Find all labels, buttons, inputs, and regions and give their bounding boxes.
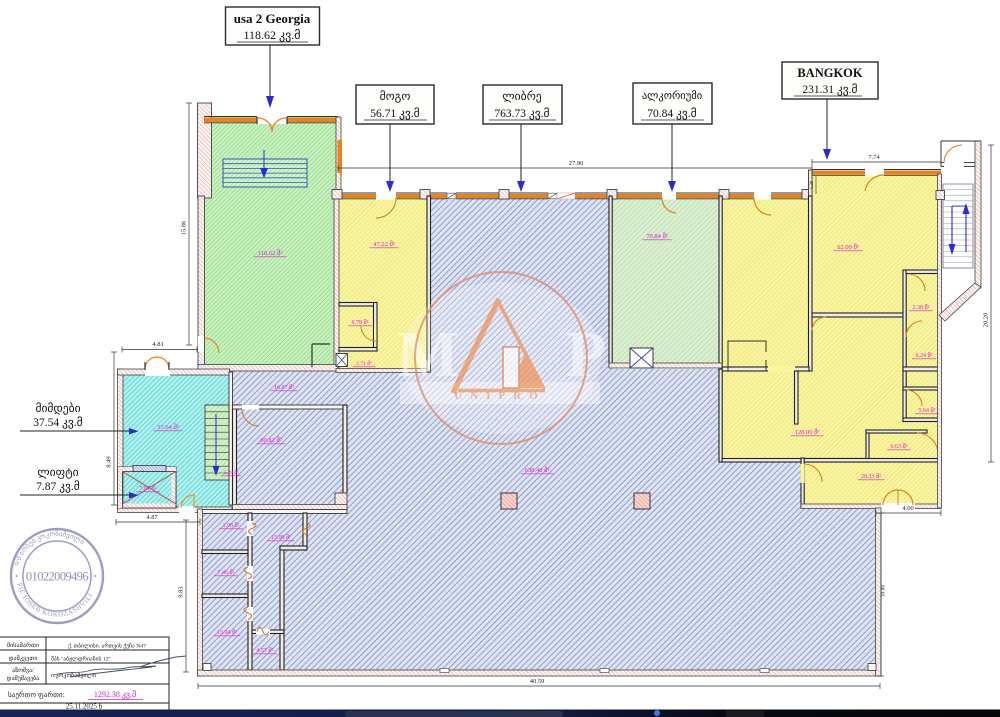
svg-text:6.63 მ²: 6.63 მ² <box>891 442 908 450</box>
svg-text:638.48 მ²: 638.48 მ² <box>525 466 550 474</box>
svg-text:15.00 მ²: 15.00 მ² <box>271 533 291 541</box>
svg-text:40.59: 40.59 <box>530 678 545 685</box>
svg-text:25.11.2025 წ: 25.11.2025 წ <box>66 703 103 711</box>
svg-text:•: • <box>94 572 97 581</box>
svg-text:47.22 მ²: 47.22 მ² <box>373 240 395 248</box>
svg-text:ქ. თბილისი, ართვის ქუჩა N47: ქ. თბილისი, ართვის ქუჩა N47 <box>68 642 146 650</box>
svg-text:118.62 მ²: 118.62 მ² <box>258 249 283 257</box>
svg-text:118.62 კვ.მ: 118.62 კვ.მ <box>243 28 300 42</box>
svg-text:16.87 მ²: 16.87 მ² <box>274 383 294 391</box>
svg-text:8.49: 8.49 <box>106 456 113 467</box>
svg-text:2.38 მ²: 2.38 მ² <box>913 303 930 311</box>
svg-text:20.20: 20.20 <box>983 313 990 328</box>
svg-text:7.46 მ²: 7.46 მ² <box>218 568 235 576</box>
svg-text:01022009496: 01022009496 <box>26 570 89 584</box>
svg-text:BANGKOK: BANGKOK <box>797 66 863 80</box>
svg-text:7.74: 7.74 <box>868 154 880 161</box>
svg-text:დამკვეთი: დამკვეთი <box>8 654 37 662</box>
svg-text:13.04 მ²: 13.04 მ² <box>217 628 237 636</box>
svg-text:37.64 მ²: 37.64 მ² <box>157 423 179 431</box>
svg-text:მიმდები: მიმდები <box>35 401 80 415</box>
svg-text:6.24 მ²: 6.24 მ² <box>916 351 933 359</box>
svg-text:M: M <box>397 318 459 391</box>
svg-text:70.84 კვ.მ: 70.84 კვ.მ <box>647 106 696 120</box>
svg-text:4.81: 4.81 <box>152 341 163 348</box>
svg-text:7.87 მ²: 7.87 მ² <box>140 484 157 492</box>
svg-text:231.31 კვ.მ: 231.31 კვ.მ <box>802 82 857 96</box>
svg-text:UNIPRO: UNIPRO <box>454 390 545 402</box>
svg-text:5.28 მ²: 5.28 მ² <box>224 469 239 476</box>
svg-text:მისამართი: მისამართი <box>7 641 39 649</box>
svg-text:5.64 მ²: 5.64 მ² <box>919 406 936 414</box>
svg-text:საერთო ფართი:: საერთო ფართი: <box>8 691 65 699</box>
svg-text:128.00 მ²: 128.00 მ² <box>795 428 820 436</box>
svg-text:2.71 მ²: 2.71 მ² <box>356 359 372 367</box>
svg-text:•: • <box>15 572 18 581</box>
svg-text:3.98 მ²: 3.98 მ² <box>223 521 240 529</box>
svg-text:56.71 კვ.მ: 56.71 კვ.მ <box>370 106 419 120</box>
svg-text:15.86: 15.86 <box>181 220 188 235</box>
svg-text:62.09 მ²: 62.09 მ² <box>837 243 859 251</box>
svg-text:20.33 მ²: 20.33 მ² <box>861 472 881 480</box>
svg-text:შპს "აბჟლდრიანის 12": შპს "აბჟლდრიანის 12" <box>51 655 111 663</box>
svg-text:დამუშავება: დამუშავება <box>7 674 40 682</box>
svg-text:ალკორიუმი: ალკორიუმი <box>642 89 703 102</box>
svg-text:4.87: 4.87 <box>146 514 158 521</box>
svg-text:9.83: 9.83 <box>178 586 185 597</box>
svg-text:27.90: 27.90 <box>569 160 584 167</box>
svg-text:7.87 კვ.მ: 7.87 კვ.მ <box>36 479 80 493</box>
svg-text:აზომვა/: აზომვა/ <box>12 666 34 674</box>
svg-text:ლიბრე: ლიბრე <box>502 89 541 103</box>
svg-text:4.57 მ²: 4.57 მ² <box>257 646 274 654</box>
svg-text:80.82 მ²: 80.82 მ² <box>260 436 282 444</box>
svg-text:1.20: 1.20 <box>810 180 815 189</box>
svg-text:70.84 მ²: 70.84 მ² <box>646 232 668 240</box>
svg-text:763.73 კვ.მ: 763.73 კვ.მ <box>494 106 549 120</box>
svg-text:4.00: 4.00 <box>902 505 913 512</box>
svg-text:6.78 მ²: 6.78 მ² <box>352 318 369 326</box>
svg-text:მოგო: მოგო <box>380 89 411 103</box>
svg-text:1292.38 კვ.მ: 1292.38 კვ.მ <box>94 690 136 699</box>
svg-text:37.54 კვ.მ: 37.54 კვ.მ <box>33 415 82 429</box>
svg-text:ლიფტი: ლიფტი <box>37 467 78 479</box>
svg-text:10.00: 10.00 <box>881 585 887 598</box>
svg-text:usa 2 Georgia: usa 2 Georgia <box>234 11 311 26</box>
